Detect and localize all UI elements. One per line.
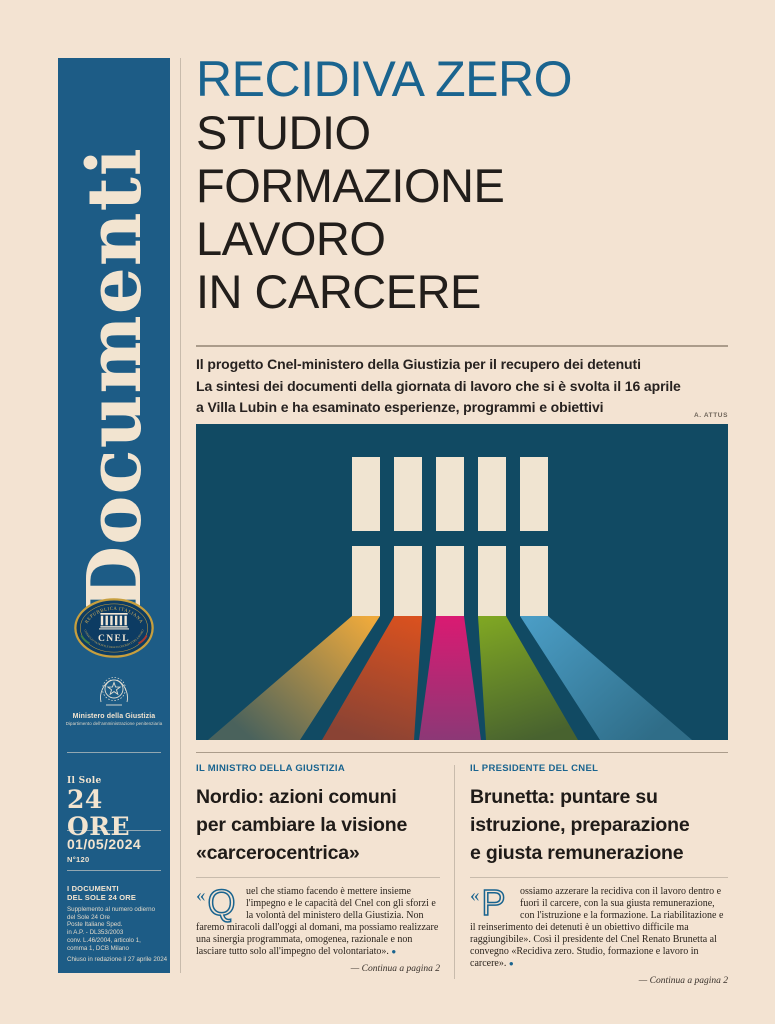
imprint-line: comma 1, DCB Milano (67, 945, 155, 953)
masthead-sidebar: Documenti REPUBBLICA ITALIANA (58, 58, 170, 973)
page-title-line: IN CARCERE (196, 265, 504, 318)
article-body: «Possiamo azzerare la recidiva con il la… (470, 886, 728, 987)
standfirst-line: La sintesi dei documenti della giornata … (196, 376, 741, 398)
masthead-title: Documenti (71, 147, 159, 610)
sidebar-rule (67, 752, 161, 753)
cnel-name-text: CNEL (98, 633, 130, 644)
page-title-line: LAVORO (196, 212, 504, 265)
supplement-title: I DOCUMENTI DEL SOLE 24 ORE (67, 884, 136, 902)
rule-below-headline (196, 877, 440, 878)
rule-above-standfirst (196, 345, 728, 347)
article-columns: IL MINISTRO DELLA GIUSTIZIA Nordio: azio… (196, 763, 728, 987)
prison-window-illustration (196, 424, 728, 740)
imprint-line: Supplemento al numero odierno (67, 906, 155, 914)
headline-line: e giusta remunerazione (470, 839, 728, 867)
imprint-line: conv. L.46/2004, articolo 1, (67, 937, 155, 945)
open-quote-mark: « (470, 885, 480, 906)
headline-line: per cambiare la visione (196, 811, 440, 839)
cnel-emblem-icon: REPUBBLICA ITALIANA CNEL CONSIGLIO NAZ (74, 598, 154, 658)
continua-note: — Continua a pagina 2 (196, 963, 440, 975)
column-divider (454, 765, 455, 979)
article-kicker: IL PRESIDENTE DEL CNEL (470, 763, 728, 774)
imprint-line: in A.P. - DL353/2003 (67, 929, 155, 937)
page-title: STUDIO FORMAZIONE LAVORO IN CARCERE (196, 106, 504, 318)
standfirst: Il progetto Cnel-ministero della Giustiz… (196, 354, 741, 419)
cnel-logo: REPUBBLICA ITALIANA CNEL CONSIGLIO NAZ (58, 598, 170, 658)
article-brunetta: IL PRESIDENTE DEL CNEL Brunetta: puntare… (470, 763, 728, 987)
ministry-name: Ministero della Giustizia (58, 713, 170, 720)
drop-cap: P (482, 886, 506, 920)
article-headline: Brunetta: puntare su istruzione, prepara… (470, 783, 728, 867)
supplement-title-line1: I DOCUMENTI (67, 884, 136, 893)
supplement-title-line2: DEL SOLE 24 ORE (67, 893, 136, 902)
article-nordio: IL MINISTRO DELLA GIUSTIZIA Nordio: azio… (196, 763, 440, 987)
issue-number: N°120 (67, 855, 89, 864)
rule-below-illustration (196, 752, 728, 753)
photo-credit: A. ATTUS (196, 412, 728, 419)
newspaper-front-page: Documenti REPUBBLICA ITALIANA (0, 0, 775, 1024)
end-bullet: ● (391, 947, 396, 956)
sidebar-rule (67, 830, 161, 831)
issue-date: 01/05/2024 (67, 836, 141, 852)
rule-below-headline (470, 877, 728, 878)
headline-line: Brunetta: puntare su (470, 783, 728, 811)
ministry-logo: Ministero della Giustizia Dipartimento d… (58, 672, 170, 726)
continua-note: — Continua a pagina 2 (470, 975, 728, 987)
article-kicker: IL MINISTRO DELLA GIUSTIZIA (196, 763, 440, 774)
imprint-line: Poste Italiane Sped. (67, 921, 155, 929)
sidebar-rule (67, 870, 161, 871)
quote-lead: «Q (196, 886, 246, 920)
drop-cap: Q (208, 886, 236, 920)
ministry-department: Dipartimento dell'amministrazione penite… (58, 721, 170, 726)
ministry-emblem-icon (91, 672, 137, 712)
page-kicker: RECIDIVA ZERO (196, 52, 572, 106)
page-title-line: FORMAZIONE (196, 159, 504, 212)
end-bullet: ● (509, 959, 514, 968)
sidebar-separator-line (180, 58, 181, 973)
article-headline: Nordio: azioni comuni per cambiare la vi… (196, 783, 440, 867)
headline-line: istruzione, preparazione (470, 811, 728, 839)
headline-line: «carcerocentrica» (196, 839, 440, 867)
sole24ore-logo-big: 24 ORE (67, 786, 170, 840)
page-title-line: STUDIO (196, 106, 504, 159)
standfirst-line: Il progetto Cnel-ministero della Giustiz… (196, 354, 741, 376)
open-quote-mark: « (196, 885, 206, 906)
closing-note: Chiuso in redazione il 27 aprile 2024 (67, 956, 167, 963)
article-body: «Quel che stiamo facendo è mettere insie… (196, 886, 440, 975)
imprint-text: Supplemento al numero odierno del Sole 2… (67, 906, 155, 952)
headline-line: Nordio: azioni comuni (196, 783, 440, 811)
quote-lead: «P (470, 886, 520, 920)
imprint-line: del Sole 24 Ore (67, 914, 155, 922)
